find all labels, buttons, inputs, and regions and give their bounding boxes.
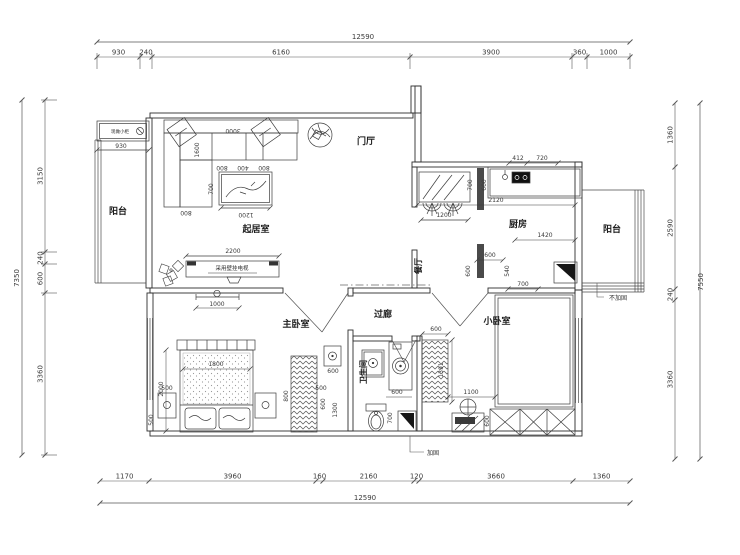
master-wardrobe [291,356,317,432]
dim-top-5: 1000 [600,49,618,57]
dim-top-overall: 12590 [352,33,374,41]
interior-dim-sofa_width: 3000 [225,127,240,134]
segment-dimension-chains: 9302406160390036010001170396016021601203… [37,49,678,484]
dim-left-overall: 7350 [13,269,21,287]
interior-dim-sofa_seat_a: 800 [216,164,228,171]
interior-dim-bed_side_l: 500 [161,385,173,392]
note-cabinet: 现做小柜 [111,128,129,135]
interior-dim-table_width: 1200 [238,211,253,218]
room-label-small-bedroom: 小卧室 [482,315,510,327]
interior-dim-small_600: 600 [484,415,491,427]
interior-dim-bath_700: 700 [387,412,394,424]
interior-dim-kitchen_600b: 600 [484,252,496,259]
dim-right-2: 240 [667,288,675,301]
interior-dim-kitchen_1420: 1420 [537,232,552,239]
note-reinforce: 加固 [427,449,439,457]
interior-dim-kitchen_2120: 2120 [488,197,503,204]
room-label-corridor: 过廊 [374,308,392,320]
dim-top-1: 240 [139,49,152,57]
interior-dim-master_wardrobe: 800 [283,390,290,402]
interior-dim-kitchen_540: 540 [504,265,511,277]
interior-dim-balcony_cabinet: 930 [115,143,127,150]
room-label-balcony-right: 阳台 [603,223,621,235]
interior-dim-sofa_seat_c: 800 [258,164,270,171]
floorplan-canvas: 12590 12590 7350 7550 930240616039003601… [0,0,740,555]
dim-bottom-3: 2160 [360,473,378,481]
dim-chain-top: 930240616039003601000 [95,49,633,70]
room-label-balcony-left: 阳台 [109,205,127,217]
interior-dim-bed_corner: 500 [148,414,155,426]
master-fixture [324,346,341,366]
windows [95,140,644,403]
coffee-table [219,172,273,211]
dim-top-2: 6160 [272,49,290,57]
interior-dim-kitchen_top_a: 412 [512,155,524,162]
floorplan-drawing: 12590 12590 7350 7550 930240616039003601… [0,0,740,555]
master-bed [164,340,256,434]
interior-dim-table_depth: 700 [208,183,215,195]
dim-left-2: 600 [37,272,45,285]
interior-dim-wardrobe_h: 1391 [438,362,445,377]
interior-dim-kitchen_top_b: 720 [536,155,548,162]
note-no-reinforce: 不加固 [609,294,627,302]
dim-chain-right: 136025902403360 [667,101,678,462]
potted-plant-living [159,260,184,286]
room-label-kitchen: 厨房 [509,218,527,230]
interior-dim-small_1100: 1100 [463,389,478,396]
interior-dim-ceiling_light: 1000 [209,301,224,308]
dim-chain-left: 31502406003360 [37,98,58,458]
dining-mirror [419,172,470,202]
interior-dim-master_box: 600 [327,368,339,375]
door-swings [285,293,488,362]
interior-dim-bath_600: 600 [391,389,403,396]
interior-dim-kitchen_600c: 600 [465,265,472,277]
room-label-bathroom: 卫生间 [358,360,368,384]
interior-dim-kitchen_mirror_depth: 700 [467,179,474,191]
interior-dim-master_600: 600 [320,398,327,410]
kitchen-counter [415,161,583,292]
interior-dim-master_1300: 1300 [332,402,339,417]
dim-bottom-4: 120 [410,473,423,481]
dim-right-overall: 7550 [697,273,705,291]
small-desk-fan [452,399,484,432]
small-bed [495,295,573,407]
interior-dimensions: 3000160080040080080070012002200100093041… [115,127,553,427]
washing-machine [389,342,412,390]
dim-bottom-overall: 12590 [354,494,376,502]
toilet [366,404,386,431]
fridge [554,262,577,283]
interior-dim-sofa_depth: 1600 [194,142,201,157]
dim-right-0: 1360 [667,126,675,144]
bath-cabinet [398,411,416,431]
room-label-master: 主卧室 [282,318,309,330]
interior-dim-dining_width: 1200 [436,212,451,219]
interior-dim-kitchen_600a: 600 [481,179,488,191]
dim-bottom-5: 3660 [487,473,505,481]
dim-bottom-0: 1170 [116,473,134,481]
dim-bottom-1: 3960 [224,473,242,481]
dim-bottom-2: 160 [313,473,326,481]
dim-left-0: 3150 [37,167,45,185]
room-label-living: 起居室 [241,223,269,235]
interior-dim-bed_side_r: 500 [315,385,327,392]
note-tv: 采用壁挂电视 [215,264,249,272]
interior-dim-sofa_seat_b: 400 [237,164,249,171]
room-label-entry: 门厅 [357,135,375,147]
dim-top-0: 930 [112,49,125,57]
entry-plant [308,123,332,147]
dim-left-1: 240 [37,251,45,264]
dim-bottom-6: 1360 [593,473,611,481]
dim-right-3: 3360 [667,371,675,389]
interior-dim-tv_wall: 2200 [225,248,240,255]
dim-top-3: 3900 [482,49,500,57]
interior-dim-bed_width: 1800 [208,361,223,368]
dim-chain-bottom: 11703960160216012036601360 [98,473,633,484]
interior-dim-sofa_chaise: 800 [180,209,192,216]
dim-right-1: 2590 [667,219,675,237]
interior-dim-bath_niche: 600 [430,326,442,333]
dim-left-3: 3360 [37,365,45,383]
room-label-dining: 餐厅 [413,258,423,275]
dim-top-4: 360 [573,49,586,57]
interior-dim-kitchen_700: 700 [517,281,529,288]
